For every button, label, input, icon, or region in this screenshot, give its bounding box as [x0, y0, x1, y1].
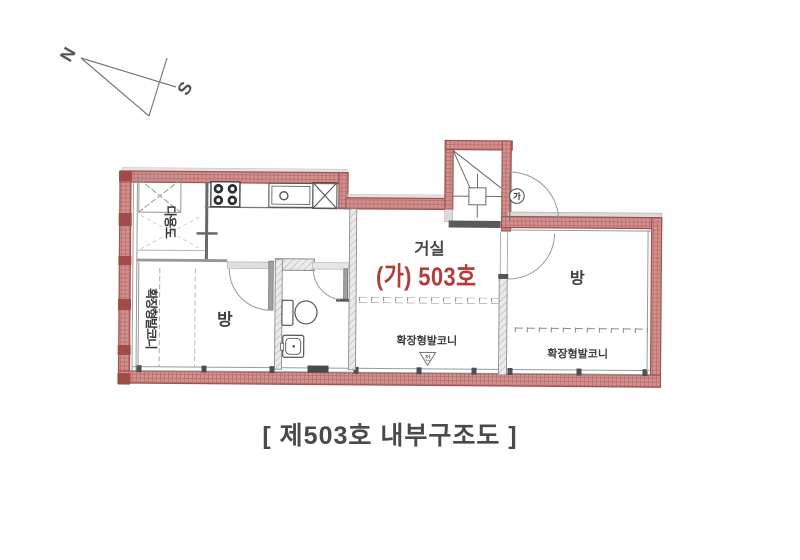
- svg-text:확장형발코니: 확장형발코니: [547, 346, 608, 360]
- svg-text:[ 제503호 내부구조도 ]: [ 제503호 내부구조도 ]: [262, 422, 517, 450]
- svg-text:확장형발코니: 확장형발코니: [144, 288, 159, 349]
- svg-text:거실: 거실: [414, 239, 445, 258]
- svg-text:N: N: [56, 44, 80, 65]
- svg-text:확장형발코니: 확장형발코니: [396, 333, 457, 347]
- svg-text:전: 전: [424, 353, 431, 362]
- svg-text:다용도: 다용도: [163, 205, 178, 239]
- svg-text:S: S: [173, 78, 196, 98]
- svg-text:방: 방: [570, 269, 585, 287]
- svg-text:방: 방: [217, 310, 233, 329]
- svg-text:(가) 503호: (가) 503호: [376, 262, 477, 292]
- svg-text:가: 가: [513, 191, 521, 201]
